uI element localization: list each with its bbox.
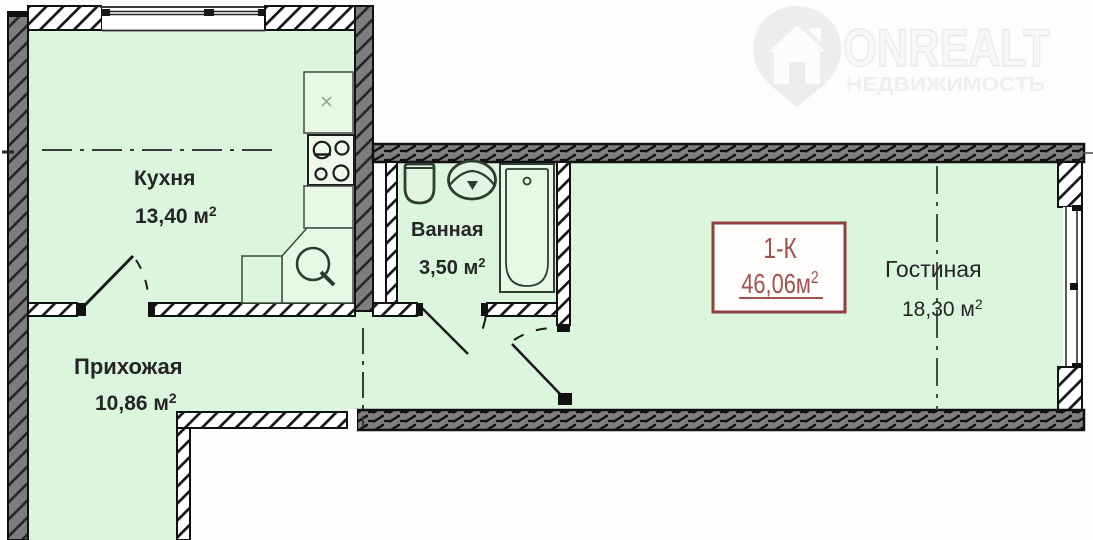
svg-text:ONREALT: ONREALT: [843, 19, 1050, 78]
svg-text:18,30 м2: 18,30 м2: [902, 296, 983, 321]
svg-text:46,06м2: 46,06м2: [741, 267, 818, 299]
svg-text:13,40 м2: 13,40 м2: [135, 203, 217, 228]
svg-text:10,86 м2: 10,86 м2: [95, 390, 177, 415]
svg-text:Ванная: Ванная: [411, 219, 484, 241]
svg-text:НЕДВИЖИМОСТЬ: НЕДВИЖИМОСТЬ: [846, 74, 1045, 96]
svg-text:Прихожая: Прихожая: [74, 354, 183, 379]
svg-text:Гостиная: Гостиная: [885, 256, 982, 282]
svg-text:3,50 м2: 3,50 м2: [419, 255, 486, 279]
svg-text:Кухня: Кухня: [134, 167, 195, 190]
svg-text:1-К: 1-К: [763, 231, 796, 264]
